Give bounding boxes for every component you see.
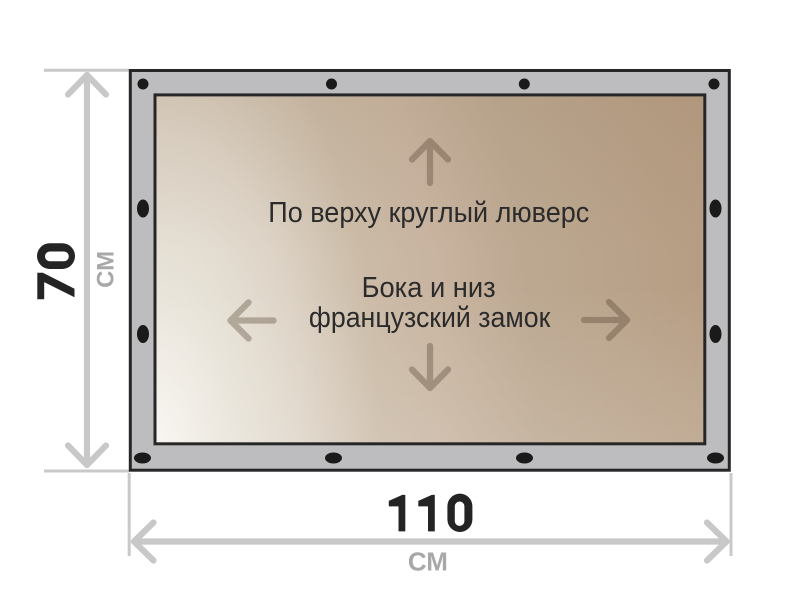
svg-text:французский замок: французский замок — [309, 302, 551, 334]
svg-text:СМ: СМ — [93, 251, 120, 288]
svg-text:Бока и низ: Бока и низ — [362, 272, 496, 304]
svg-text:СМ: СМ — [408, 546, 448, 576]
svg-text:По верху круглый люверс: По верху круглый люверс — [268, 197, 589, 229]
